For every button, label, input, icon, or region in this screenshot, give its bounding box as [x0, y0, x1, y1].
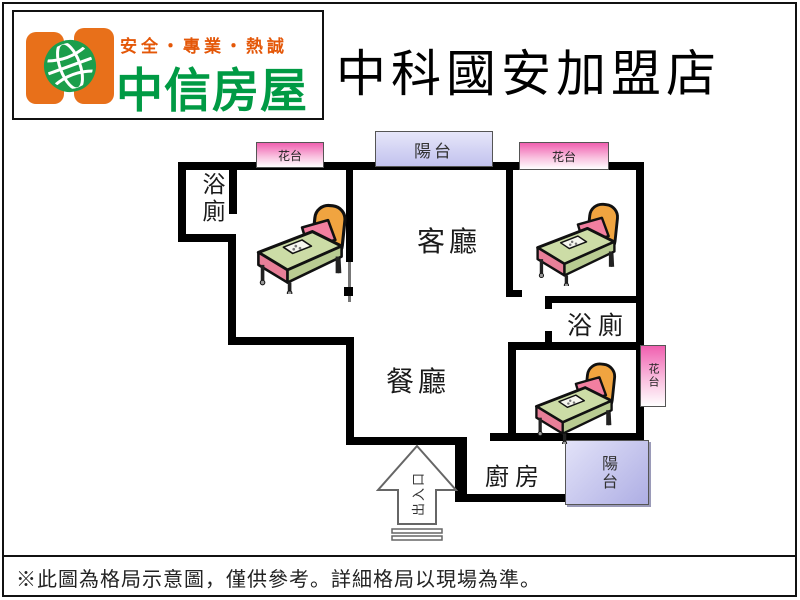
wall-left-upper — [178, 162, 186, 242]
disclaimer-text: ※此圖為格局示意圖，僅供參考。詳細格局以現場為準。 — [16, 563, 541, 592]
brand-logo-box: 安全・專業・熱誠 中信房屋 — [12, 10, 324, 120]
bed-icon-bedroom2 — [528, 190, 624, 286]
wall-bedroom2-bottom-stub — [506, 290, 522, 297]
bed-icon-bedroom1 — [248, 190, 352, 294]
flower-box-2-label: 花台 — [552, 148, 576, 165]
flower-box-2: 花台 — [519, 142, 609, 170]
room-label-bath1: 浴廁 — [194, 172, 228, 226]
wall-bath2-bottom — [508, 342, 644, 350]
wall-dining-left — [346, 337, 354, 445]
footer-divider — [3, 555, 796, 557]
balcony-top: 陽台 — [375, 131, 493, 167]
wall-bedroom1-bottom — [228, 337, 354, 345]
company-logo-icon — [24, 24, 116, 108]
flower-box-3-label: 花台 — [645, 363, 661, 389]
entrance-arrow-icon: 出入口 — [376, 444, 460, 546]
flower-box-1: 花台 — [256, 142, 324, 168]
wall-bedroom2-left — [506, 162, 513, 297]
brand-name: 中信房屋 — [116, 52, 308, 121]
wall-bedroom3-left — [508, 342, 516, 441]
wall-bath2-top — [545, 296, 644, 303]
room-label-dining: 餐廳 — [386, 360, 450, 400]
balcony-top-label: 陽台 — [414, 137, 454, 162]
room-label-kitchen: 廚房 — [485, 457, 545, 492]
balcony-bottom-label: 陽台 — [595, 455, 619, 491]
room-label-bath2: 浴廁 — [567, 306, 629, 342]
flower-box-3: 花台 — [640, 345, 666, 407]
bed-icon-bedroom3 — [527, 350, 621, 444]
store-title: 中科國安加盟店 — [336, 34, 721, 106]
flyer-canvas: 安全・專業・熱誠 中信房屋 中科國安加盟店 花台 陽台 花台 花台 陽台 浴廁 … — [0, 0, 800, 600]
wall-bath1-right — [229, 162, 237, 214]
wall-left-jog — [228, 234, 236, 345]
entrance-label: 出入口 — [411, 471, 426, 516]
balcony-bottom: 陽台 — [565, 440, 649, 505]
wall-kitchen-bottom — [455, 494, 568, 502]
room-label-living: 客廳 — [417, 220, 481, 260]
flower-box-1-label: 花台 — [278, 147, 302, 164]
wall-bath2-left-upper — [545, 296, 552, 309]
